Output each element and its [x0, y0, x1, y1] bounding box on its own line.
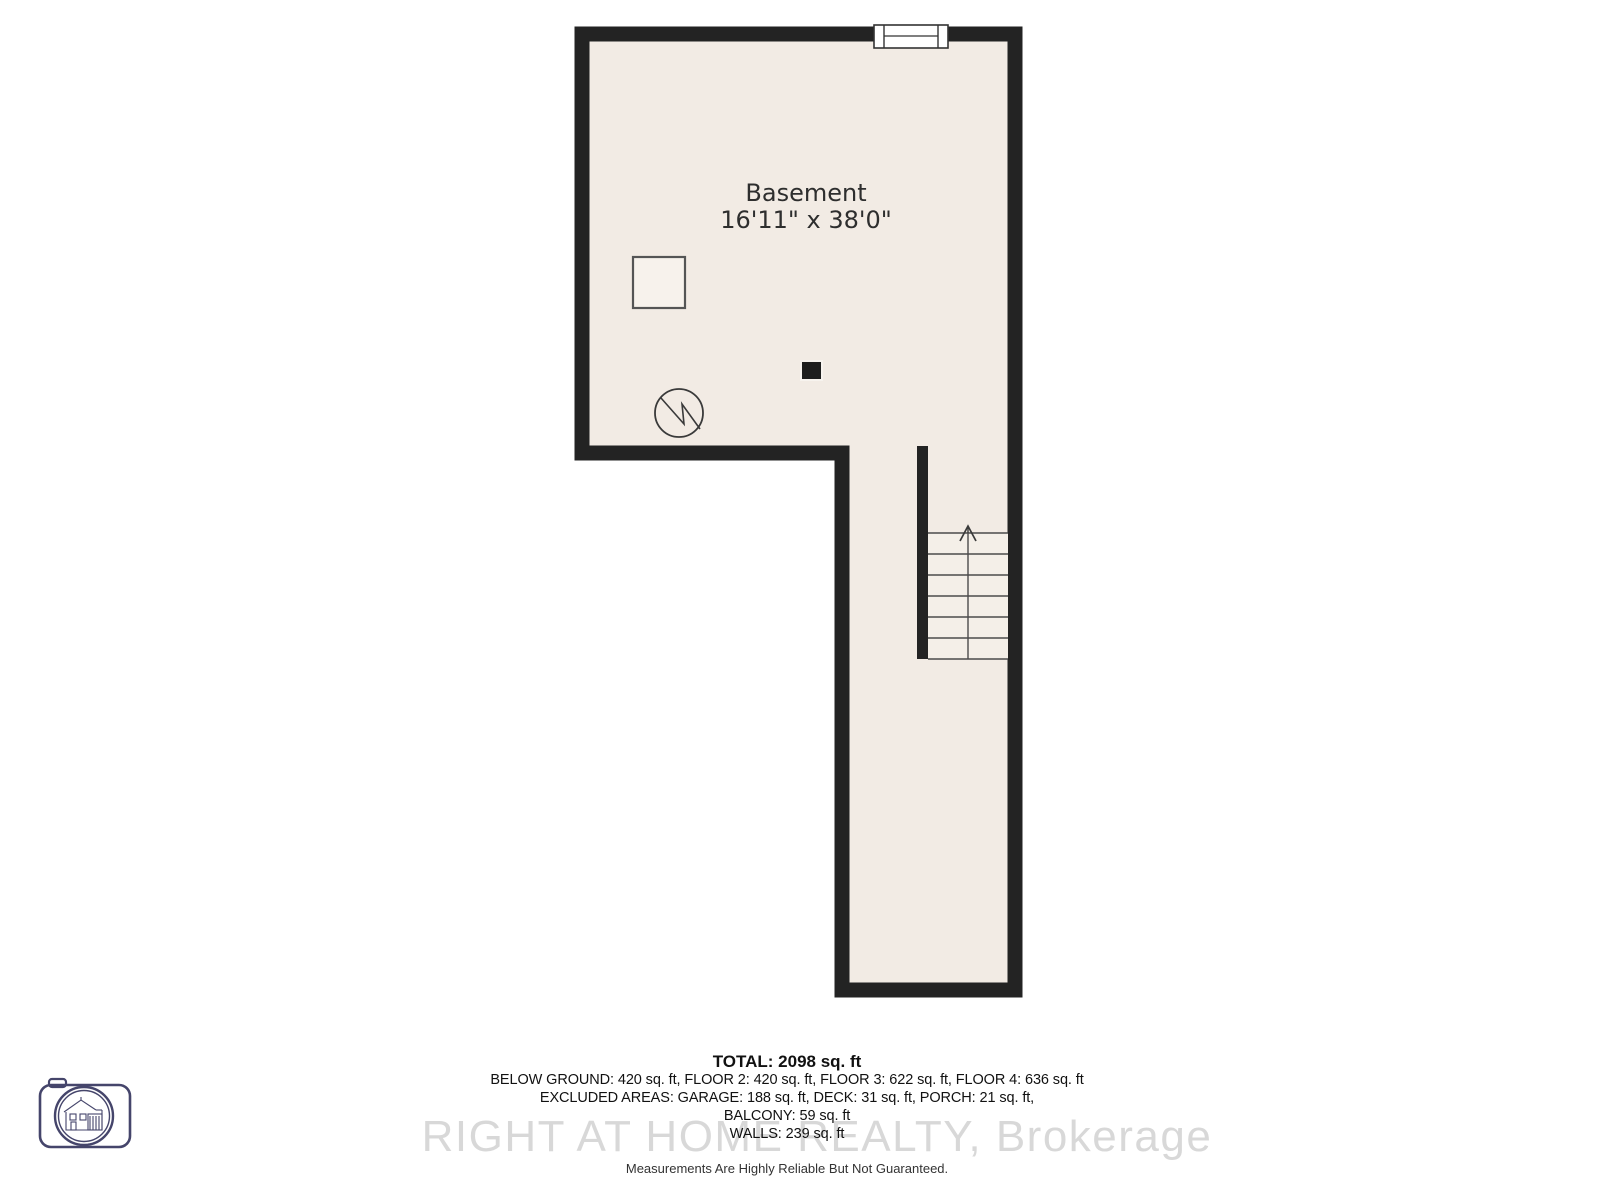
staircase — [928, 526, 1008, 659]
support-column — [801, 361, 822, 380]
stairwell-partition-wall — [917, 446, 928, 659]
floorplan-page: Basement 16'11" x 38'0" RIGHT AT HOME RE… — [0, 0, 1600, 1200]
room-dimensions-label: 16'11" x 38'0" — [720, 206, 892, 234]
room-name-label: Basement — [745, 179, 866, 207]
window-icon — [874, 25, 948, 48]
floor-areas-text: BELOW GROUND: 420 sq. ft, FLOOR 2: 420 s… — [490, 1071, 1083, 1089]
total-area-text: TOTAL: 2098 sq. ft — [490, 1052, 1083, 1071]
balcony-area-text: BALCONY: 59 sq. ft — [490, 1107, 1083, 1125]
floorplan-drawing: Basement 16'11" x 38'0" — [0, 0, 1600, 1060]
camera-lens-outer — [55, 1087, 113, 1145]
basement-floor-outline — [582, 34, 1015, 990]
camera-house-logo-icon — [38, 1070, 134, 1152]
excluded-areas-text: EXCLUDED AREAS: GARAGE: 188 sq. ft, DECK… — [490, 1089, 1083, 1107]
area-summary: TOTAL: 2098 sq. ft BELOW GROUND: 420 sq.… — [490, 1052, 1083, 1143]
measurement-disclaimer: Measurements Are Highly Reliable But Not… — [626, 1161, 948, 1176]
walls-area-text: WALLS: 239 sq. ft — [490, 1125, 1083, 1143]
furnace-symbol — [633, 257, 685, 308]
water-heater-icon — [655, 389, 703, 437]
